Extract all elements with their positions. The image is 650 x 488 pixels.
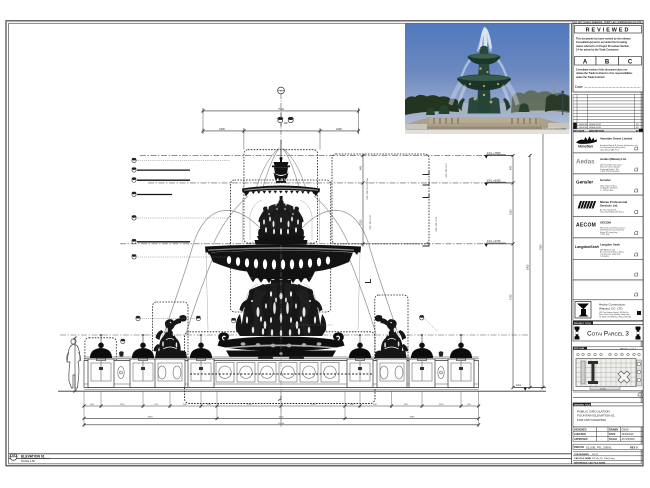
svg-text:511UB_PD_20001: 511UB_PD_20001 (586, 445, 612, 449)
svg-text:REV 0: REV 0 (630, 445, 638, 449)
svg-text:1890: 1890 (219, 127, 225, 131)
svg-text:TYPE 'FRP-SC02': TYPE 'FRP-SC02' (370, 214, 372, 230)
svg-text:Taipa, Macau SAR, P.R.C.: Taipa, Macau SAR, P.R.C. (600, 148, 620, 151)
svg-text:7560: 7560 (278, 107, 284, 111)
svg-text:ISSUE FOR: ISSUE FOR (589, 124, 601, 126)
svg-text:1050: 1050 (439, 404, 445, 406)
svg-text:TYPE 'FRP-SC03': TYPE 'FRP-SC03' (436, 216, 438, 232)
svg-text:Tel: (852) 2579 8238 Fax: (8: Tel: (852) 2579 8238 Fax: (852) 2516 659… (599, 316, 631, 318)
svg-text:FOR FRP DRAWING: FOR FRP DRAWING (577, 418, 607, 422)
svg-text:APPROVED: APPROVED (574, 438, 588, 441)
svg-text:relieve the Trade Contractor o: relieve the Trade Contractor of its resp… (576, 72, 633, 75)
svg-text:845: 845 (360, 165, 363, 170)
svg-text:01: 01 (12, 453, 16, 457)
svg-text:1730: 1730 (247, 404, 253, 406)
svg-text:AECOM: AECOM (600, 221, 611, 225)
svg-text:under the Trade Contract.: under the Trade Contract. (576, 76, 605, 79)
svg-text:Gensler: Gensler (576, 180, 593, 185)
svg-text:B: B (605, 59, 610, 65)
svg-text:4730: 4730 (510, 294, 513, 300)
svg-text:(Macau) CO. LTD.: (Macau) CO. LTD. (599, 306, 623, 310)
svg-text:ELEVATION 01: ELEVATION 01 (21, 454, 45, 458)
svg-text:REFERENCE CAD FILE NAME: REFERENCE CAD FILE NAME (574, 461, 606, 464)
svg-text:F.F.L.: F.F.L. (516, 383, 522, 387)
svg-text:A: A (583, 59, 588, 65)
svg-text:3580: 3580 (148, 416, 154, 418)
svg-text:Aedas: Aedas (576, 159, 595, 166)
svg-text:F.F.L +4730: F.F.L +4730 (487, 239, 501, 243)
svg-text:© Copyright.m.k: © Copyright.m.k (542, 126, 561, 130)
svg-text:10/04/16: 10/04/16 (579, 124, 588, 126)
svg-text:Date :: Date : (575, 85, 585, 89)
svg-text:TYPE 'FRP-CL01' DETAIL: TYPE 'FRP-CL01' DETAIL (366, 178, 369, 200)
svg-text:3580: 3580 (410, 416, 416, 418)
svg-text:F.F.L +7500: F.F.L +7500 (487, 151, 501, 155)
svg-text:Venetian Orient Limited: Venetian Orient Limited (600, 137, 633, 141)
svg-text:T 2861 1728 F 2529 6419: T 2861 1728 F 2529 6419 (600, 171, 619, 173)
svg-text:511UA_PD_20001.dwg: 511UA_PD_20001.dwg (592, 457, 615, 460)
svg-text:2030: 2030 (510, 209, 513, 215)
svg-text:Langdon Seah: Langdon Seah (600, 243, 620, 247)
svg-text:LangdonSeah: LangdonSeah (575, 245, 600, 249)
svg-text:AS SHOWN: AS SHOWN (622, 438, 635, 441)
svg-text:SCALE 1:50: SCALE 1:50 (21, 460, 35, 463)
svg-text:REVIEWED: REVIEWED (586, 27, 631, 33)
svg-text:CMAD: CMAD (622, 428, 629, 431)
svg-text:Aedas (Macau) Ltd.: Aedas (Macau) Ltd. (600, 157, 627, 161)
svg-text:31123: 31123 (592, 454, 599, 456)
svg-text:Consultant review of this docu: Consultant review of this document does … (576, 69, 627, 72)
svg-text:TYPE 'FRP-CL01': TYPE 'FRP-CL01' (446, 162, 448, 178)
svg-text:SCALE: SCALE (609, 438, 618, 441)
svg-text:T 1 213 327 3600: T 1 213 327 3600 (600, 190, 613, 192)
svg-text:6760: 6760 (527, 264, 530, 270)
svg-text:COTAI PARCEL 3: COTAI PARCEL 3 (587, 330, 629, 337)
svg-text:1890: 1890 (336, 127, 342, 131)
svg-text:1730: 1730 (311, 404, 317, 406)
svg-text:T 2317 7000: T 2317 7000 (600, 234, 610, 236)
svg-text:AECOM: AECOM (576, 223, 596, 229)
svg-text:2030: 2030 (360, 219, 363, 225)
svg-text:CHECKED: CHECKED (574, 433, 586, 436)
svg-text:-: - (601, 438, 602, 441)
svg-text:status referred to in Projec: status referred to in Project Procedure … (576, 45, 630, 48)
svg-text:5.4 for action by the Trade Co: 5.4 for action by the Trade Contractor. (576, 49, 619, 52)
svg-text:DWG NO: DWG NO (574, 446, 584, 449)
svg-text:Gensler: Gensler (600, 178, 612, 182)
svg-text:SCALE: SCALE (600, 387, 607, 390)
svg-text:1130: 1130 (120, 404, 125, 406)
svg-text:This document has been revised: This document has been revised by the re… (576, 38, 631, 41)
svg-text:T 28 56623: T 28 56623 (600, 256, 609, 258)
svg-text:Consultants(s) and is accorded: Consultants(s) and is accorded the fol o… (576, 41, 628, 44)
svg-text:Services Ltd.: Services Ltd. (600, 203, 618, 207)
svg-text:10/04/2016: 10/04/2016 (622, 433, 635, 436)
svg-text:1: 1 (280, 89, 282, 93)
svg-text:C: C (628, 59, 633, 65)
svg-text:KC: KC (636, 124, 639, 126)
svg-text:F.F.L +6760: F.F.L +6760 (487, 178, 501, 182)
svg-text:Venetian: Venetian (578, 145, 594, 149)
svg-text:CAD FILE NAME: CAD FILE NAME (574, 457, 592, 460)
svg-text:7500: 7500 (540, 244, 543, 250)
svg-text:-: - (601, 433, 602, 436)
svg-text:DATE: DATE (609, 433, 616, 436)
svg-text:DRAWN: DRAWN (609, 428, 618, 431)
svg-text:China Law Building 21/F, Macau: China Law Building 21/F, Macau (600, 212, 624, 214)
svg-text:DESIGNED: DESIGNED (574, 428, 587, 431)
svg-text:JOB NUMBER: JOB NUMBER (574, 454, 589, 456)
svg-text:3460: 3460 (279, 416, 285, 418)
svg-text:12040: 12040 (278, 423, 285, 425)
svg-text:845: 845 (510, 165, 513, 170)
